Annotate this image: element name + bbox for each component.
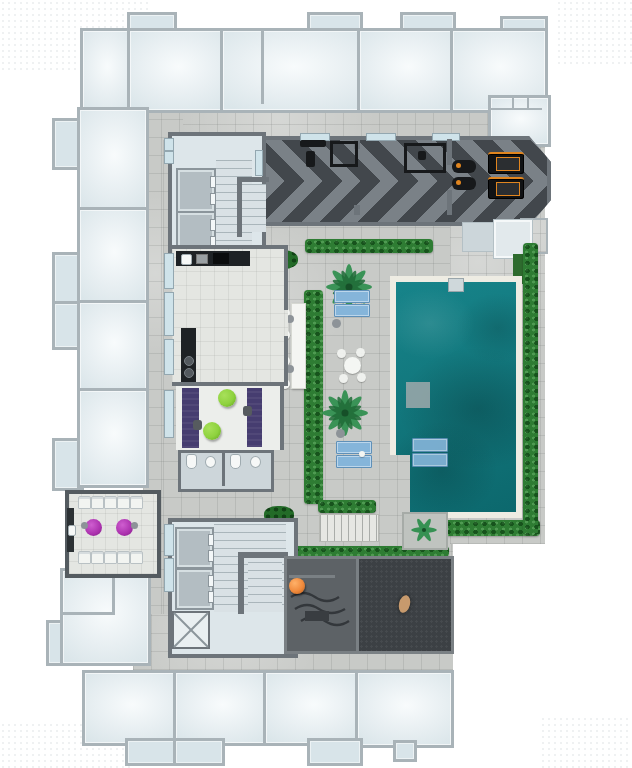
core-wall [238,552,244,614]
elevator [176,168,216,213]
ghost-unit [60,568,151,666]
window [164,253,174,289]
sun-lounger [336,455,372,468]
chair [104,496,117,509]
pouf [193,420,202,430]
ghost-unit [127,28,226,113]
gym-wall-stub [354,205,360,215]
burner [184,356,194,366]
window [432,133,460,141]
core-wall [238,552,288,558]
chair [117,551,130,564]
halftone-corner-bottom-right [540,716,632,768]
stairs [244,184,266,232]
fire-feature [397,594,412,614]
wall [284,336,288,384]
ghost-unit [82,670,179,746]
sink [205,456,216,468]
play-rug [247,388,262,447]
spin-bike-accent [456,180,461,185]
side-table [359,451,365,457]
window [164,524,174,556]
window [164,558,174,592]
window [164,151,174,164]
sun-lounger [334,304,370,317]
wall [284,248,288,310]
ghost-unit [77,388,149,488]
kitchen-appliance [181,254,192,265]
window [366,133,396,141]
squat-rack [330,141,358,167]
round-table [344,357,361,374]
window [164,339,174,375]
sun-shelf [406,382,430,408]
magenta-table [85,519,102,536]
chair [78,496,91,509]
chair [130,496,143,509]
sink [250,456,261,468]
in-pool-lounger [412,453,448,467]
cooktop [213,253,229,264]
play-rug [182,388,199,448]
halftone-corner-top-right [556,0,632,66]
bean-bag [218,389,236,407]
treadmill-belt [496,182,520,196]
stairs [248,562,282,608]
spin-bike-accent [456,163,461,168]
media-screen [68,525,76,536]
locker-shelf [491,108,542,110]
window [164,390,174,438]
deck-steps [319,514,379,542]
pool-ladder [448,278,464,292]
relax-room [284,556,362,654]
chair [91,551,104,564]
ghost-unit [220,28,363,113]
lounge-dark-room [356,556,454,654]
treadmill [488,177,524,199]
locker-divider [512,98,514,110]
pouf [243,406,252,416]
core-wall [237,177,242,237]
ghost-unit [77,107,149,213]
treadmill-belt [496,157,520,171]
ghost-unit [80,28,133,113]
floor-plan [0,0,632,768]
sun-lounger [336,441,372,454]
ghost-unit [77,300,149,394]
chair [81,522,88,529]
balcony [173,738,225,766]
burner [184,368,194,378]
hedge [305,239,433,253]
chair [104,551,117,564]
bean-bag [203,422,221,440]
outdoor-shower-pad [462,222,494,252]
chair [78,551,91,564]
ghost-unit [357,28,456,113]
wall [222,450,225,486]
toilet [186,454,197,469]
chair [131,522,138,529]
ghost-unit [173,670,269,746]
chair [357,373,366,382]
side-table [336,429,345,438]
mat [305,611,329,621]
balcony [125,738,177,766]
ghost-unit [77,207,149,306]
chair [91,496,104,509]
palm-tree [406,514,442,546]
hedge [318,500,376,513]
toilet [230,454,241,469]
wall [172,382,288,386]
chair [356,348,365,357]
weight-bench [306,151,315,167]
orange-bean-bag [289,578,305,594]
unit-partition [63,612,115,615]
ghost-unit [355,670,454,748]
hedge [523,243,538,535]
chair [339,374,348,383]
cable-machine-seat [418,151,426,160]
chair [117,496,130,509]
side-table [332,319,341,328]
chair [337,349,346,358]
palm-tree [316,386,374,440]
treadmill [488,152,524,174]
ghost-unit [263,670,361,746]
window [255,150,263,176]
dumbbell-rack [300,140,326,147]
in-pool-lounger [412,438,448,452]
locker-divider [527,98,529,110]
kitchen-sink [196,254,208,264]
service-shaft [172,611,210,649]
gym-wall-stub [447,190,452,215]
window [164,292,174,336]
window [164,138,174,151]
elevator [175,568,214,610]
unit-partition [261,31,264,104]
sun-lounger [334,290,370,303]
wall [280,384,284,450]
magenta-table [116,519,133,536]
elevator [175,527,214,569]
gym-wall-stub [447,139,452,165]
balcony [393,740,417,762]
chair [130,551,143,564]
balcony [307,738,363,766]
wall [172,245,288,249]
